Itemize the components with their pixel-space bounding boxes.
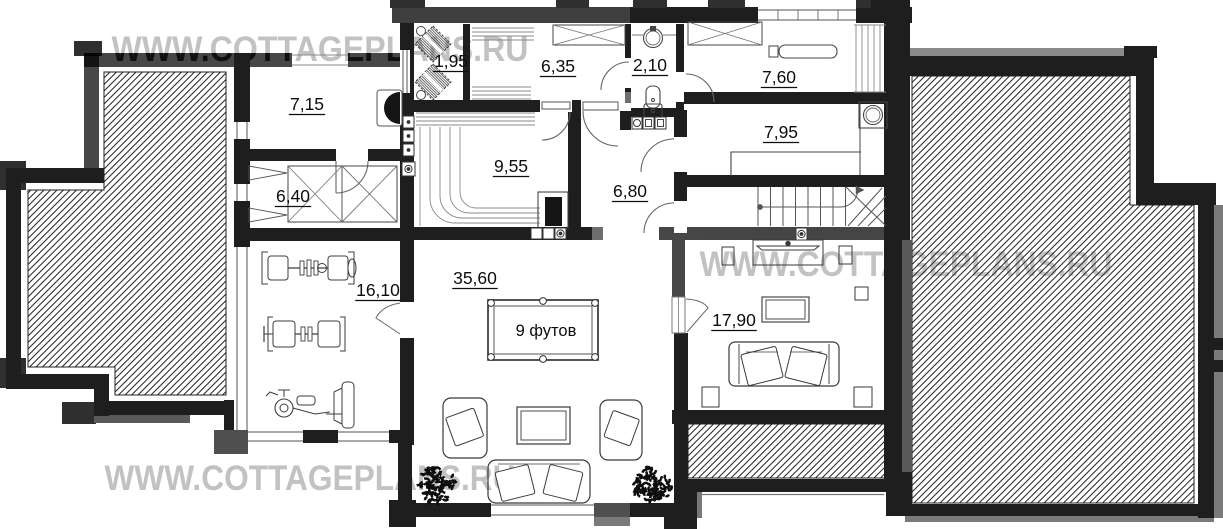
svg-text:7,60: 7,60 [762, 67, 796, 87]
svg-text:9 футов: 9 футов [516, 322, 577, 340]
svg-text:7,95: 7,95 [764, 122, 798, 142]
svg-text:6,35: 6,35 [541, 56, 575, 76]
svg-text:7,15: 7,15 [290, 94, 324, 114]
svg-text:9,55: 9,55 [494, 156, 528, 176]
svg-text:6,80: 6,80 [613, 181, 647, 201]
svg-text:35,60: 35,60 [453, 268, 497, 288]
svg-text:16,10: 16,10 [356, 280, 400, 300]
svg-text:1,95: 1,95 [434, 51, 468, 71]
svg-text:2,10: 2,10 [633, 55, 667, 75]
svg-text:6,40: 6,40 [276, 186, 310, 206]
svg-text:17,90: 17,90 [712, 310, 756, 330]
svg-text:WWW.COTTAGEPLANS.RU: WWW.COTTAGEPLANS.RU [105, 459, 516, 498]
